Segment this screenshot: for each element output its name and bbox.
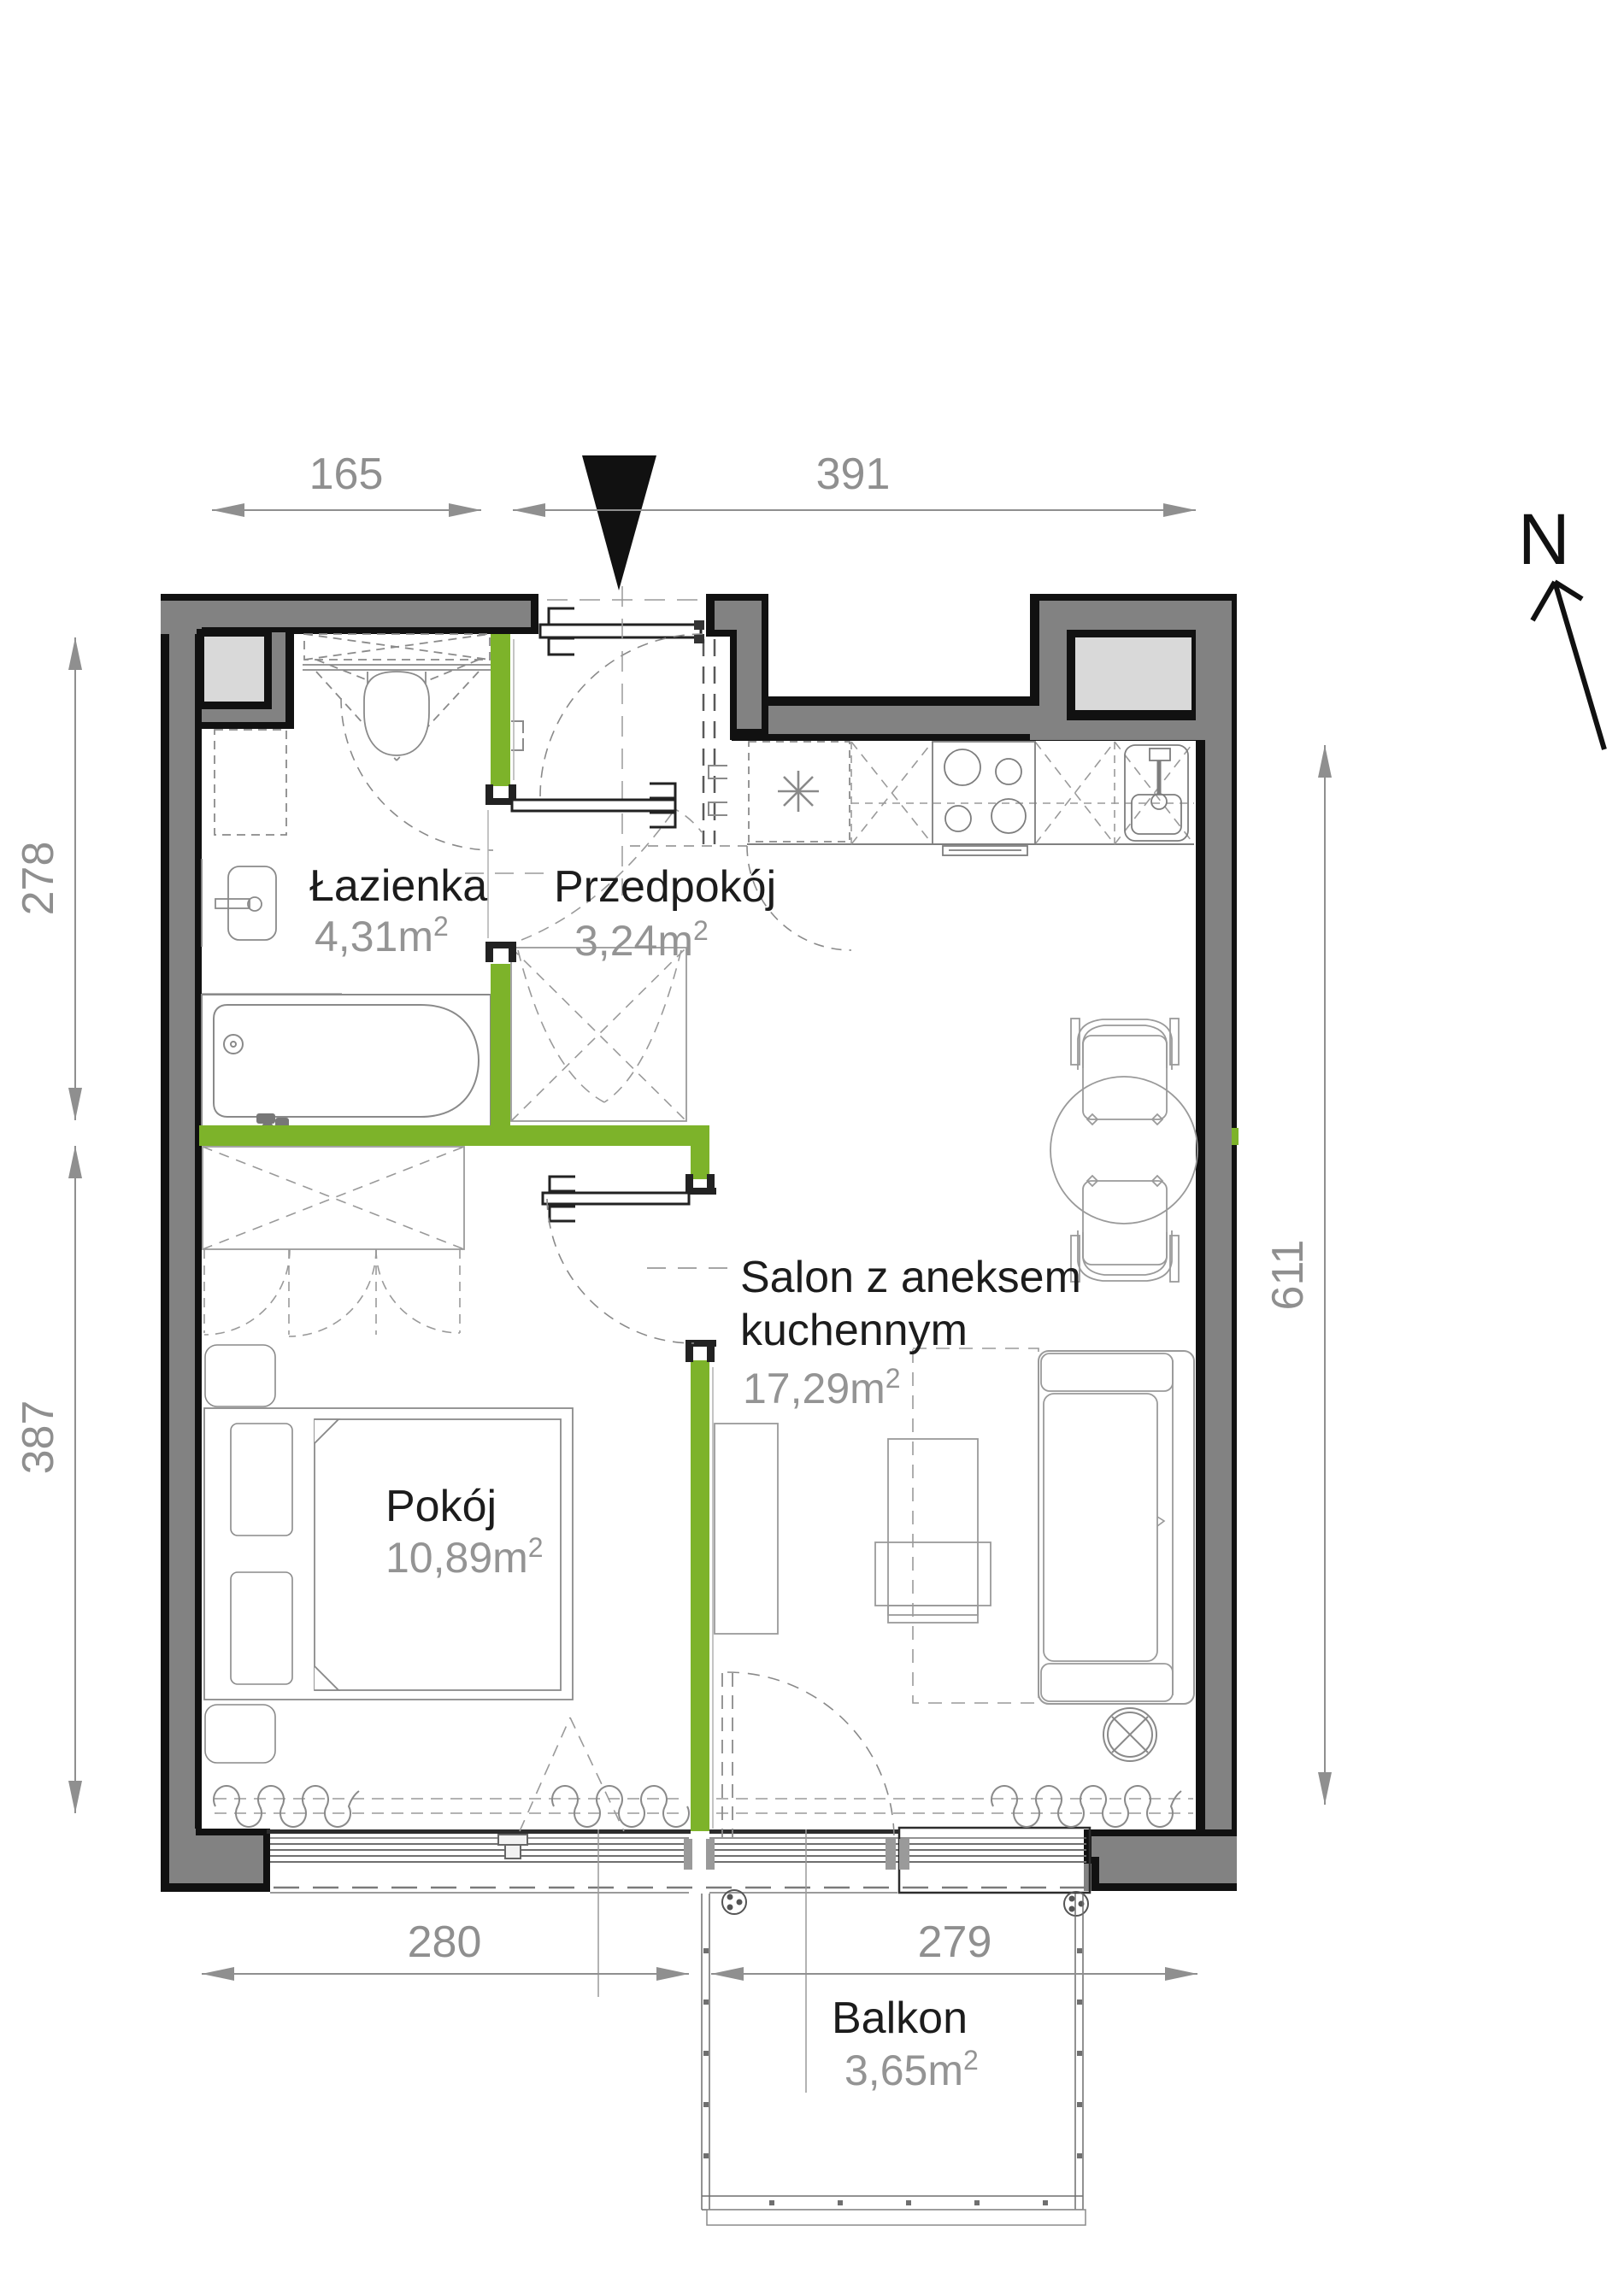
svg-text:279: 279 [918,1917,992,1967]
svg-text:387: 387 [14,1401,63,1475]
svg-text:611: 611 [1263,1240,1313,1311]
svg-text:17,29m2: 17,29m2 [743,1363,901,1412]
svg-text:280: 280 [408,1917,482,1967]
svg-text:Przedpokój: Przedpokój [554,862,776,912]
svg-text:4,31m2: 4,31m2 [315,911,449,960]
svg-text:N: N [1518,499,1570,579]
svg-text:10,89m2: 10,89m2 [385,1532,544,1582]
svg-text:391: 391 [816,449,891,499]
svg-text:278: 278 [14,842,63,916]
svg-text:3,24m2: 3,24m2 [574,915,709,965]
svg-text:Łazienka: Łazienka [309,861,487,911]
svg-text:165: 165 [309,449,384,499]
svg-text:3,65m2: 3,65m2 [844,2045,979,2094]
svg-text:Salon z aneksem: Salon z aneksem [740,1253,1081,1302]
svg-text:Balkon: Balkon [832,1994,968,2043]
svg-text:Pokój: Pokój [385,1482,497,1531]
svg-text:kuchennym: kuchennym [740,1306,968,1355]
